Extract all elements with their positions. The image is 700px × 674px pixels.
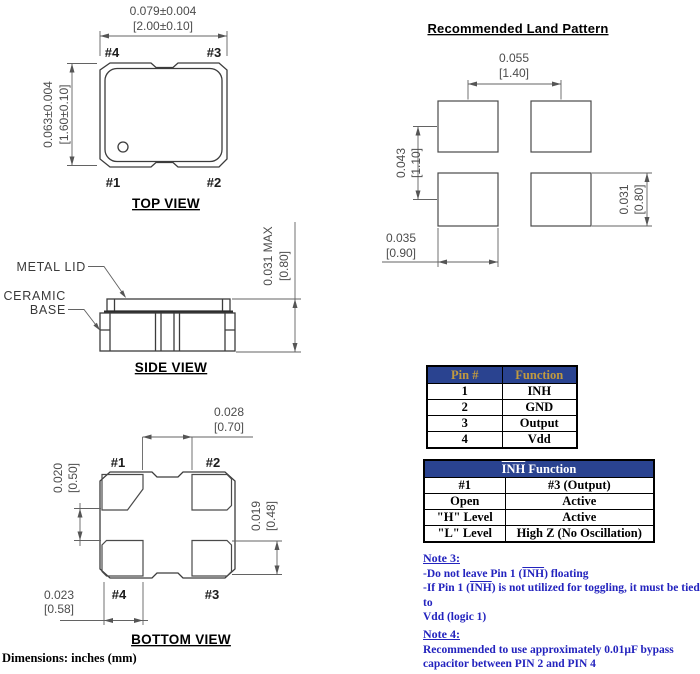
inh-signal-name: INH xyxy=(502,462,526,476)
land-h-pitch-inches: 0.055 xyxy=(499,51,529,65)
bottom-pad-width-inches: 0.023 xyxy=(44,588,74,602)
table-row: "L" Level High Z (No Oscillation) xyxy=(424,526,654,543)
bottom-pad-1 xyxy=(102,475,143,511)
land-pad-width-inches: 0.035 xyxy=(386,231,416,245)
land-pattern-drawing: Recommended Land Pattern 0.055 [1.40] 0.… xyxy=(382,21,652,267)
ceramic-label: CERAMIC xyxy=(3,289,66,303)
bottom-pad-gap-mm: [0.70] xyxy=(214,420,244,434)
bottom-row-gap-mm: [0.50] xyxy=(66,463,80,493)
inh-high-state: "H" Level xyxy=(424,510,505,526)
land-pad-top-right xyxy=(531,101,591,152)
note-3-line-2: -If Pin 1 (INH) is not utilized for togg… xyxy=(423,581,700,610)
metal-lid-label: METAL LID xyxy=(16,260,86,274)
note-4-heading: Note 4: xyxy=(423,627,460,641)
bottom-view-package-outline xyxy=(100,472,235,578)
dimensions-units-note: Dimensions: inches (mm) xyxy=(2,651,137,666)
pin-3-function: Output xyxy=(502,416,577,432)
land-pad-bottom-left xyxy=(438,173,498,226)
note-4-line-2: capacitor between PIN 2 and PIN 4 xyxy=(423,657,700,672)
side-view-title: SIDE VIEW xyxy=(135,360,207,375)
bottom-pad-4 xyxy=(102,541,143,577)
land-pattern-title: Recommended Land Pattern xyxy=(427,21,608,36)
side-view-height-inches: 0.031 MAX xyxy=(261,226,275,285)
pin-3-number: 3 xyxy=(427,416,502,432)
bottom-pad-3 xyxy=(192,541,232,577)
pin-4-number: 4 xyxy=(427,432,502,449)
land-pad-bottom-right xyxy=(531,173,591,226)
inh-high-result: Active xyxy=(505,510,654,526)
bottom-view-pin3-label: #3 xyxy=(205,587,219,602)
top-view-width-mm: [2.00±0.10] xyxy=(133,19,193,33)
bottom-pad-height-mm: [0.48] xyxy=(264,501,278,531)
land-v-pitch-inches: 0.043 xyxy=(394,148,408,178)
pin-table-header-function: Function xyxy=(502,366,577,384)
note-3-heading: Note 3: xyxy=(423,551,460,565)
pin-function-table: Pin # Function 1 INH 2 GND 3 Output 4 Vd… xyxy=(426,365,578,449)
top-view-package-outline xyxy=(100,63,227,167)
table-row: Open Active xyxy=(424,494,654,510)
note-3: Note 3: -Do not leave Pin 1 (INH) floati… xyxy=(423,551,700,625)
land-h-pitch-mm: [1.40] xyxy=(499,66,529,80)
inh-function-table: INH Function #1 #3 (Output) Open Active … xyxy=(423,459,655,543)
pin-table-header-row: Pin # Function xyxy=(427,366,577,384)
land-pad-height-inches: 0.031 xyxy=(617,184,631,214)
inh-open-result: Active xyxy=(505,494,654,510)
pin-1-function: INH xyxy=(502,384,577,400)
note-4: Note 4: Recommended to use approximately… xyxy=(423,627,700,672)
table-row: 1 INH xyxy=(427,384,577,400)
table-row: 3 Output xyxy=(427,416,577,432)
side-view-ceramic-base xyxy=(100,313,235,351)
top-view-pin4-label: #4 xyxy=(105,45,120,60)
note-3-line-3: Vdd (logic 1) xyxy=(423,610,700,625)
land-pad-height-mm: [0.80] xyxy=(632,184,646,214)
top-view-width-inches: 0.079±0.004 xyxy=(130,4,197,18)
bottom-view-pin4-label: #4 xyxy=(112,587,127,602)
top-view-pin3-label: #3 xyxy=(207,45,221,60)
table-row: "H" Level Active xyxy=(424,510,654,526)
side-view-drawing: METAL LID CERAMIC BASE 0.031 MAX [0.80] … xyxy=(3,222,301,375)
bottom-row-gap-inches: 0.020 xyxy=(51,463,65,493)
top-view-pin2-label: #2 xyxy=(207,175,221,190)
inh-table-header-row: INH Function xyxy=(424,460,654,478)
bottom-pad-gap-inches: 0.028 xyxy=(214,405,244,419)
top-view-title: TOP VIEW xyxy=(132,196,200,211)
inh-col-pin1: #1 xyxy=(424,478,505,494)
table-row: 4 Vdd xyxy=(427,432,577,449)
bottom-pad-2 xyxy=(192,475,232,511)
inh-table-header: INH Function xyxy=(424,460,654,478)
top-view-drawing: 0.079±0.004 [2.00±0.10] 0.063±0.004 [1.6… xyxy=(41,4,227,211)
inh-low-result: High Z (No Oscillation) xyxy=(505,526,654,543)
bottom-view-title: BOTTOM VIEW xyxy=(131,632,231,647)
pin-2-number: 2 xyxy=(427,400,502,416)
pin-1-number: 1 xyxy=(427,384,502,400)
table-row: 2 GND xyxy=(427,400,577,416)
inh-signal-name: INH xyxy=(470,582,492,594)
inh-col-pin3: #3 (Output) xyxy=(505,478,654,494)
top-view-height-mm: [1.60±0.10] xyxy=(57,85,71,145)
inh-signal-name: INH xyxy=(527,384,551,398)
inh-open-state: Open xyxy=(424,494,505,510)
inh-low-state: "L" Level xyxy=(424,526,505,543)
pin-2-function: GND xyxy=(502,400,577,416)
top-view-lid-outline xyxy=(105,69,222,162)
side-view-metal-lid xyxy=(107,299,230,311)
bottom-pad-width-mm: [0.58] xyxy=(44,602,74,616)
bottom-pad-height-inches: 0.019 xyxy=(249,501,263,531)
table-row: #1 #3 (Output) xyxy=(424,478,654,494)
bottom-view-pin1-label: #1 xyxy=(111,455,125,470)
land-pad-top-left xyxy=(438,101,498,152)
inh-signal-name: INH xyxy=(522,568,544,580)
top-view-height-inches: 0.063±0.004 xyxy=(41,81,55,148)
note-4-line-1: Recommended to use approximately 0.01µF … xyxy=(423,643,700,658)
pin-table-header-pin: Pin # xyxy=(427,366,502,384)
land-v-pitch-mm: [1.10] xyxy=(409,148,423,178)
bottom-view-drawing: #1 #2 #4 #3 0.028 [0.70] 0.020 [0.50] 0.… xyxy=(44,405,282,647)
bottom-view-pin2-label: #2 xyxy=(206,455,220,470)
side-view-height-mm: [0.80] xyxy=(277,251,291,281)
pin-4-function: Vdd xyxy=(502,432,577,449)
base-label: BASE xyxy=(30,303,66,317)
top-view-pin1-label: #1 xyxy=(106,175,120,190)
land-pad-width-mm: [0.90] xyxy=(386,246,416,260)
note-3-line-1: -Do not leave Pin 1 (INH) floating xyxy=(423,567,700,582)
pin1-index-mark xyxy=(118,142,128,152)
